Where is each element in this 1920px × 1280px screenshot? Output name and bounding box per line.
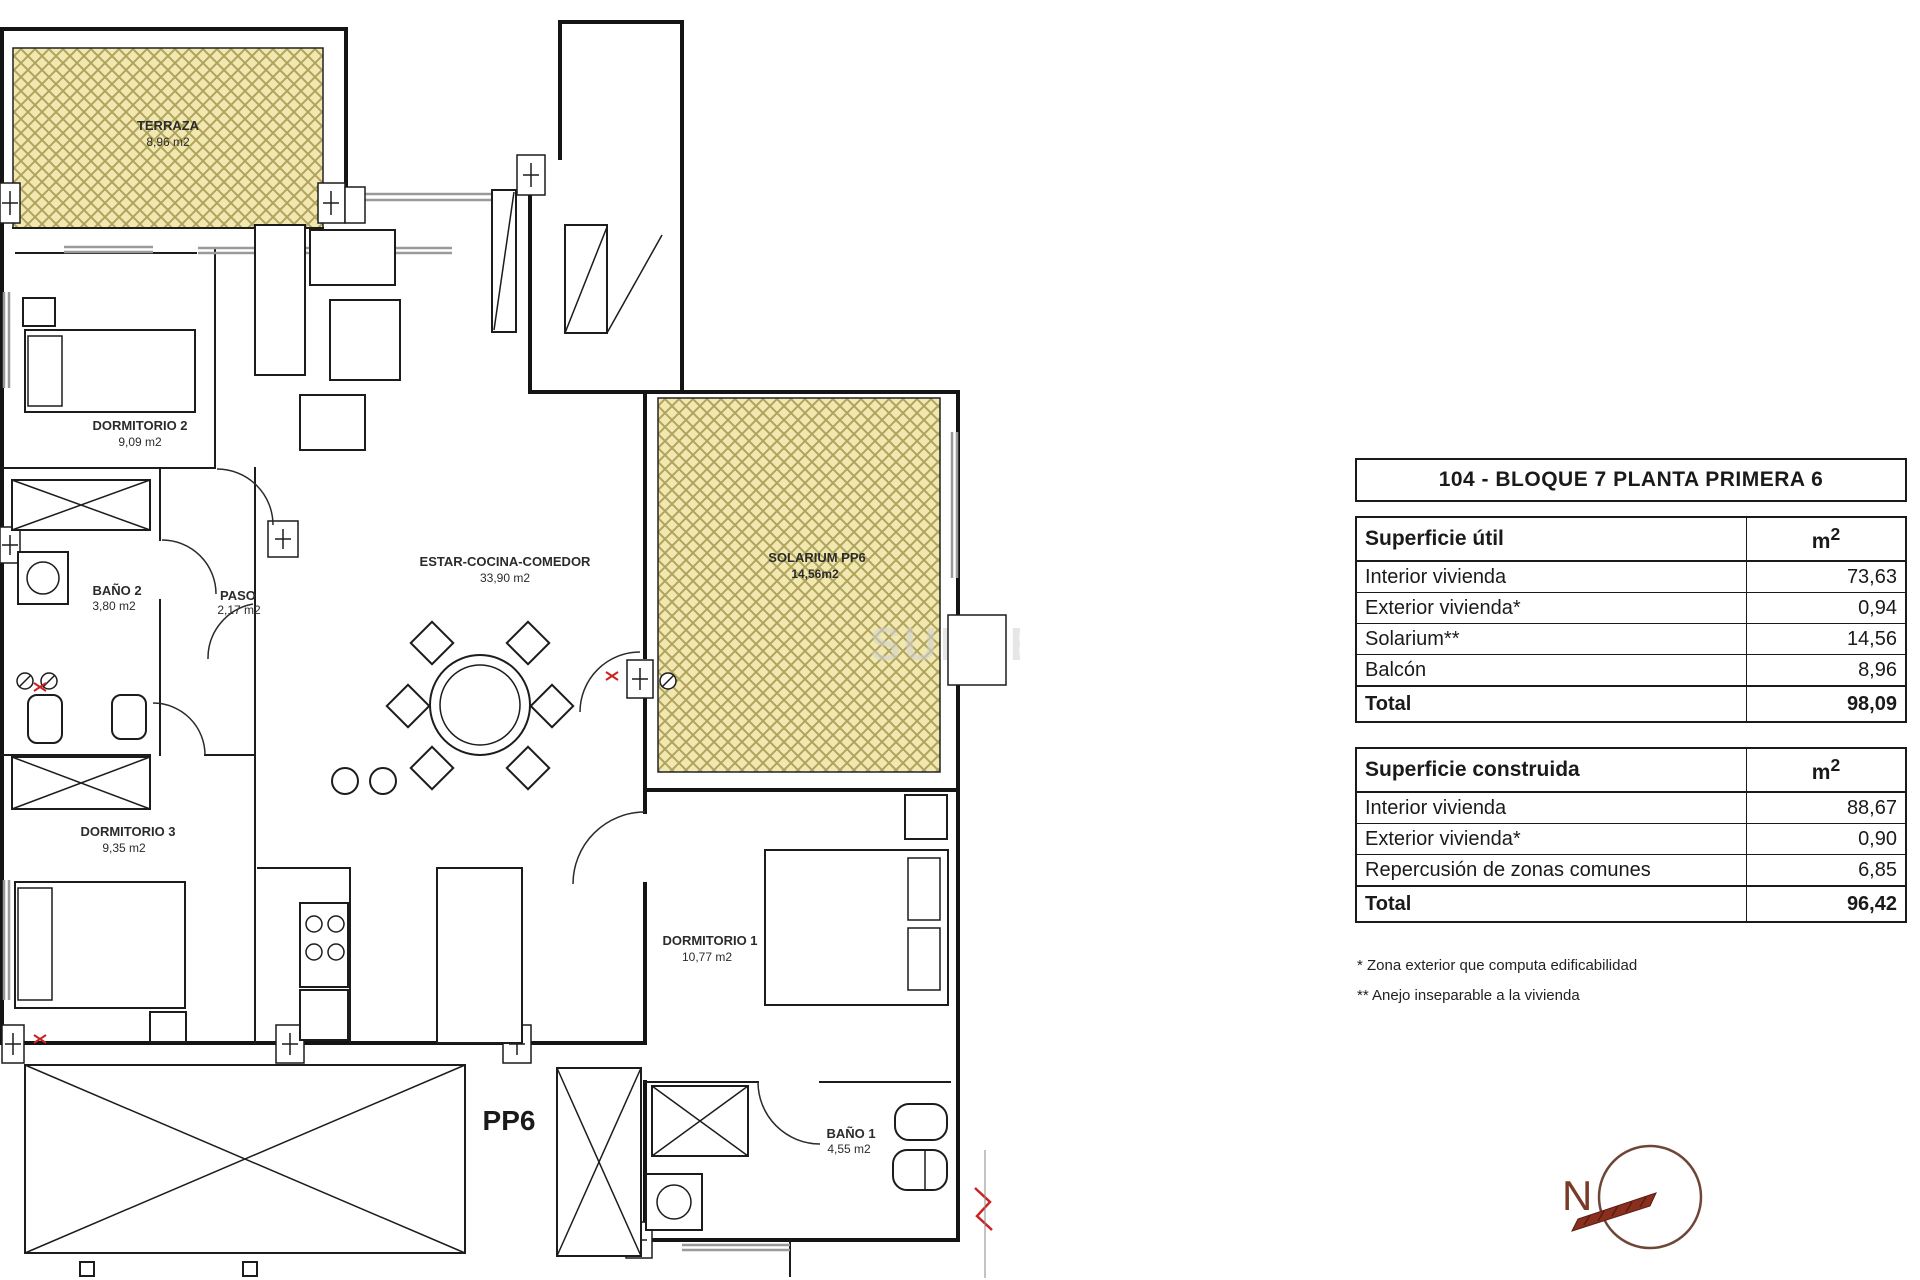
table-row: Exterior vivienda*0,94 — [1356, 593, 1906, 624]
compass: N — [1548, 1126, 1758, 1276]
dorm3-furniture — [12, 757, 186, 1042]
room-label-terraza: TERRAZA — [137, 118, 200, 133]
dorm1-furniture — [765, 795, 948, 1005]
room-area-estar: 33,90 m2 — [480, 571, 530, 585]
table-row: Interior vivienda73,63 — [1356, 561, 1906, 593]
table-row: Balcón8,96 — [1356, 655, 1906, 687]
floor-plan: SUNSET — [0, 0, 1020, 1280]
superficie-util-table: Superficie útil m2 Interior vivienda73,6… — [1355, 516, 1907, 723]
room-area-dormitorio1: 10,77 m2 — [682, 950, 732, 964]
footnote-exterior: * Zona exterior que computa edificabilid… — [1357, 957, 1907, 974]
room-area-paso: 2,17 m2 — [217, 603, 261, 617]
living-furniture — [255, 225, 573, 794]
room-area-terraza: 8,96 m2 — [146, 135, 190, 149]
room-area-bano2: 3,80 m2 — [92, 599, 136, 613]
north-letter: N — [1562, 1172, 1592, 1219]
plan-title: 104 - BLOQUE 7 PLANTA PRIMERA 6 — [1355, 458, 1907, 502]
unit-label-pp6: PP6 — [483, 1105, 536, 1136]
room-label-dormitorio3: DORMITORIO 3 — [80, 824, 175, 839]
room-area-bano1: 4,55 m2 — [827, 1142, 871, 1156]
solarium-pillar — [948, 615, 1006, 685]
superficie-construida-table: Superficie construida m2 Interior vivien… — [1355, 747, 1907, 923]
room-label-paso: PASO — [220, 588, 256, 603]
util-header: Superficie útil — [1356, 517, 1747, 561]
room-label-solarium: SOLARIUM PP6 — [768, 550, 866, 565]
table-row: Solarium**14,56 — [1356, 624, 1906, 655]
table-row: Exterior vivienda*0,90 — [1356, 824, 1906, 855]
room-area-dormitorio2: 9,09 m2 — [118, 435, 162, 449]
table-row: Interior vivienda88,67 — [1356, 792, 1906, 824]
table-row: Repercusión de zonas comunes6,85 — [1356, 855, 1906, 887]
dorm2-furniture — [12, 298, 195, 530]
room-label-bano2: BAÑO 2 — [92, 583, 141, 598]
built-header: Superficie construida — [1356, 748, 1747, 792]
room-label-bano1: BAÑO 1 — [826, 1126, 875, 1141]
room-area-solarium: 14,56m2 — [791, 567, 839, 581]
bano2-fixtures — [18, 552, 146, 743]
room-label-estar: ESTAR-COCINA-COMEDOR — [420, 554, 592, 569]
util-total-row: Total98,09 — [1356, 686, 1906, 722]
room-label-dormitorio2: DORMITORIO 2 — [92, 418, 187, 433]
kitchen — [300, 903, 348, 1040]
solarium-hatch — [658, 398, 940, 772]
valve-symbols — [17, 673, 676, 689]
room-label-dormitorio1: DORMITORIO 1 — [662, 933, 757, 948]
util-unit-header: m2 — [1747, 517, 1907, 561]
built-total-row: Total96,42 — [1356, 886, 1906, 922]
footnote-anejo: ** Anejo inseparable a la vivienda — [1357, 987, 1907, 1004]
room-area-dormitorio3: 9,35 m2 — [102, 841, 146, 855]
surface-panel: 104 - BLOQUE 7 PLANTA PRIMERA 6 Superfic… — [1355, 458, 1907, 1017]
built-unit-header: m2 — [1747, 748, 1907, 792]
entry-hall — [492, 190, 662, 333]
